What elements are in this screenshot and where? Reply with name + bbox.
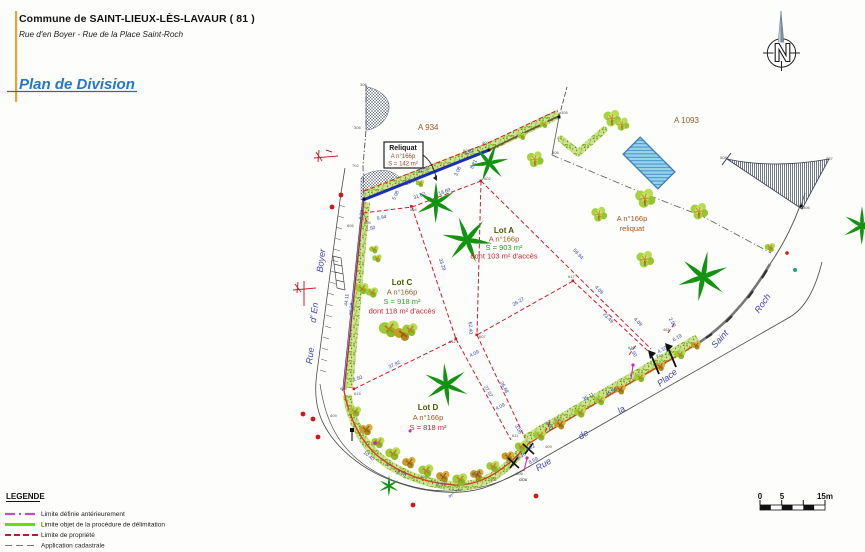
svg-text:A n°166p: A n°166p <box>413 413 444 422</box>
svg-text:A 934: A 934 <box>418 123 439 132</box>
svg-text:405: 405 <box>385 462 392 467</box>
svg-text:306: 306 <box>803 205 810 210</box>
svg-text:400: 400 <box>482 140 489 145</box>
svg-text:306: 306 <box>552 150 559 155</box>
svg-text:Rue: Rue <box>304 347 316 365</box>
svg-text:604: 604 <box>410 207 417 212</box>
svg-text:508: 508 <box>720 155 727 160</box>
svg-text:LEGENDE: LEGENDE <box>6 492 45 501</box>
svg-text:408: 408 <box>554 417 561 422</box>
svg-text:S = 818 m²: S = 818 m² <box>410 423 447 432</box>
svg-text:912: 912 <box>656 353 663 358</box>
svg-text:507: 507 <box>826 156 833 161</box>
svg-text:Limite définie antérieurement: Limite définie antérieurement <box>41 511 125 518</box>
svg-text:Commune de SAINT-LIEUX-LÈS-LAV: Commune de SAINT-LIEUX-LÈS-LAVAUR ( 81 ) <box>19 12 255 25</box>
svg-text:5: 5 <box>780 492 785 501</box>
svg-text:605: 605 <box>364 220 371 225</box>
svg-text:602: 602 <box>484 176 491 181</box>
svg-text:Limite de propriété: Limite de propriété <box>41 532 95 539</box>
svg-text:306: 306 <box>561 110 568 115</box>
svg-text:Application cadastrale: Application cadastrale <box>41 543 105 550</box>
svg-text:Limite objet de la procédure d: Limite objet de la procédure de délimita… <box>41 522 165 529</box>
svg-text:306: 306 <box>360 82 367 87</box>
svg-text:402: 402 <box>490 477 497 482</box>
svg-text:702: 702 <box>352 163 359 168</box>
svg-text:clou: clou <box>519 477 528 482</box>
svg-text:481: 481 <box>663 327 670 332</box>
svg-text:401: 401 <box>455 488 462 493</box>
svg-text:611: 611 <box>512 433 519 438</box>
svg-text:306: 306 <box>516 471 523 476</box>
svg-text:614: 614 <box>340 386 347 391</box>
svg-text:606: 606 <box>347 223 354 228</box>
svg-text:Lot D: Lot D <box>418 403 439 412</box>
svg-text:Lot C: Lot C <box>392 278 413 287</box>
svg-text:601: 601 <box>463 148 470 153</box>
svg-text:607: 607 <box>479 334 486 339</box>
svg-text:615: 615 <box>354 391 361 396</box>
svg-text:306: 306 <box>404 177 411 182</box>
svg-text:36.38: 36.38 <box>348 302 355 315</box>
svg-text:409: 409 <box>330 413 337 418</box>
svg-text:Reliquat: Reliquat <box>389 145 417 152</box>
svg-text:15m: 15m <box>817 492 833 501</box>
svg-text:Plan de Division: Plan de Division <box>19 76 135 93</box>
svg-text:0: 0 <box>758 492 763 501</box>
svg-text:62.40: 62.40 <box>467 322 474 335</box>
svg-text:409: 409 <box>545 444 552 449</box>
svg-text:404: 404 <box>420 474 427 479</box>
svg-text:8.42: 8.42 <box>436 482 446 489</box>
svg-text:616: 616 <box>628 345 635 350</box>
svg-text:A n°166p: A n°166p <box>387 288 418 297</box>
svg-text:dont 118 m² d'accès: dont 118 m² d'accès <box>369 307 436 316</box>
svg-text:S = 142 m²: S = 142 m² <box>388 162 418 168</box>
svg-text:dont 103 m² d'accès: dont 103 m² d'accès <box>470 252 538 261</box>
svg-text:A 1093: A 1093 <box>674 116 699 125</box>
svg-text:Rue d'en Boyer - Rue de la Pla: Rue d'en Boyer - Rue de la Place Saint-R… <box>19 30 183 39</box>
svg-text:612: 612 <box>449 339 456 344</box>
svg-text:617: 617 <box>568 274 575 279</box>
svg-text:A n°166p: A n°166p <box>617 214 648 223</box>
svg-text:306: 306 <box>354 125 361 130</box>
svg-text:reliquat: reliquat <box>620 224 646 233</box>
svg-text:S = 918 m²: S = 918 m² <box>384 297 421 306</box>
svg-text:A n°166p: A n°166p <box>391 154 416 160</box>
